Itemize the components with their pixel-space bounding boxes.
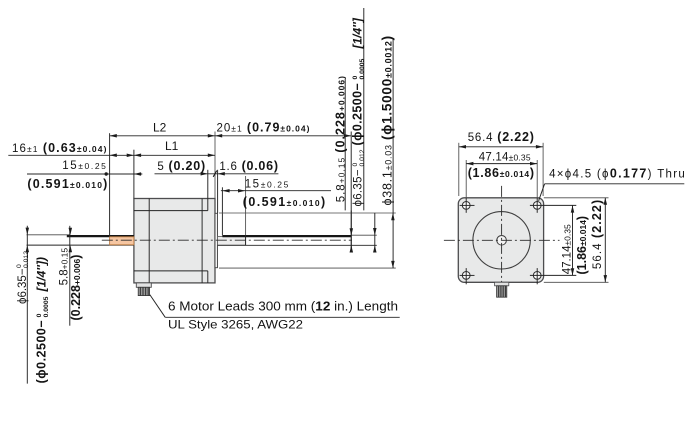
svg-text:20±1 (0.79±0.04): 20±1 (0.79±0.04): [217, 121, 311, 135]
svg-text:0.012: 0.012: [359, 149, 366, 166]
svg-text:5 (0.20): 5 (0.20): [157, 159, 206, 173]
svg-text:0.0005: 0.0005: [43, 296, 50, 317]
svg-text:(0.591±0.010): (0.591±0.010): [243, 195, 327, 209]
svg-text:15±0.25: 15±0.25: [62, 160, 107, 172]
svg-text:(ϕ0.2500−: (ϕ0.2500−: [35, 320, 49, 384]
svg-text:5.8+0.15: 5.8+0.15: [58, 248, 70, 286]
svg-text:0: 0: [36, 313, 43, 317]
svg-text:(ϕ0.2500−: (ϕ0.2500−: [351, 83, 365, 146]
svg-text:56.4 (2.22): 56.4 (2.22): [590, 199, 604, 269]
svg-text:0.0005: 0.0005: [359, 58, 366, 79]
svg-text:6 Motor Leads 300 mm (12 in.): 6 Motor Leads 300 mm (12 in.) Length: [168, 298, 398, 313]
svg-text:5.8+0.15 (0.228+0.006): 5.8+0.15 (0.228+0.006): [333, 75, 347, 202]
svg-text:ϕ6.35−: ϕ6.35−: [17, 268, 29, 304]
svg-text:(0.228+0.006): (0.228+0.006): [69, 255, 83, 321]
svg-text:16±1 (0.63±0.04): 16±1 (0.63±0.04): [12, 141, 108, 155]
svg-text:(0.591±0.010): (0.591±0.010): [27, 177, 108, 191]
svg-text:15±0.25: 15±0.25: [245, 178, 290, 190]
svg-text:[1/4″]: [1/4″]: [351, 17, 365, 49]
svg-text:ϕ6.35−: ϕ6.35−: [353, 169, 365, 206]
svg-text:0: 0: [352, 163, 359, 167]
svg-text:L2: L2: [153, 121, 167, 135]
svg-text:0: 0: [16, 264, 23, 268]
svg-text:L1: L1: [165, 139, 179, 153]
svg-text:UL Style 3265, AWG22: UL Style 3265, AWG22: [168, 317, 303, 331]
svg-text:1.6 (0.06): 1.6 (0.06): [219, 159, 278, 173]
svg-text:47.14±0.35: 47.14±0.35: [479, 152, 531, 164]
svg-text:0.012: 0.012: [23, 251, 30, 268]
svg-text:56.4 (2.22): 56.4 (2.22): [468, 130, 535, 144]
svg-text:(1.86±0.014): (1.86±0.014): [468, 166, 535, 180]
svg-text:0: 0: [352, 76, 359, 80]
svg-text:47.14±0.35: 47.14±0.35: [561, 224, 573, 274]
svg-text:(1.86±0.014): (1.86±0.014): [575, 216, 589, 275]
svg-text:4×ϕ4.5 (ϕ0.177) Thru: 4×ϕ4.5 (ϕ0.177) Thru: [549, 167, 686, 181]
svg-text:[1/4″]): [1/4″]): [35, 257, 49, 292]
